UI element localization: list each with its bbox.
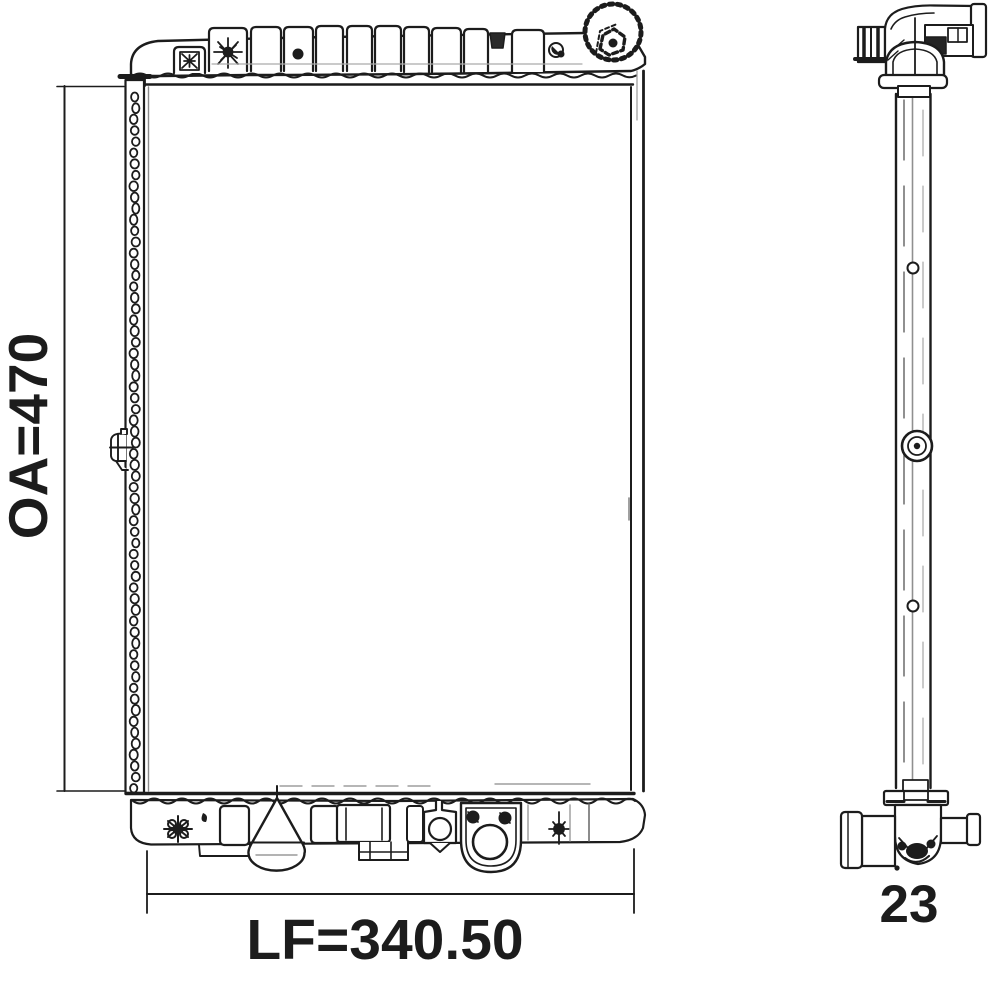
- svg-text:OA=470: OA=470: [0, 333, 59, 539]
- svg-text:LF=340.50: LF=340.50: [246, 908, 523, 972]
- svg-text:23: 23: [880, 875, 939, 934]
